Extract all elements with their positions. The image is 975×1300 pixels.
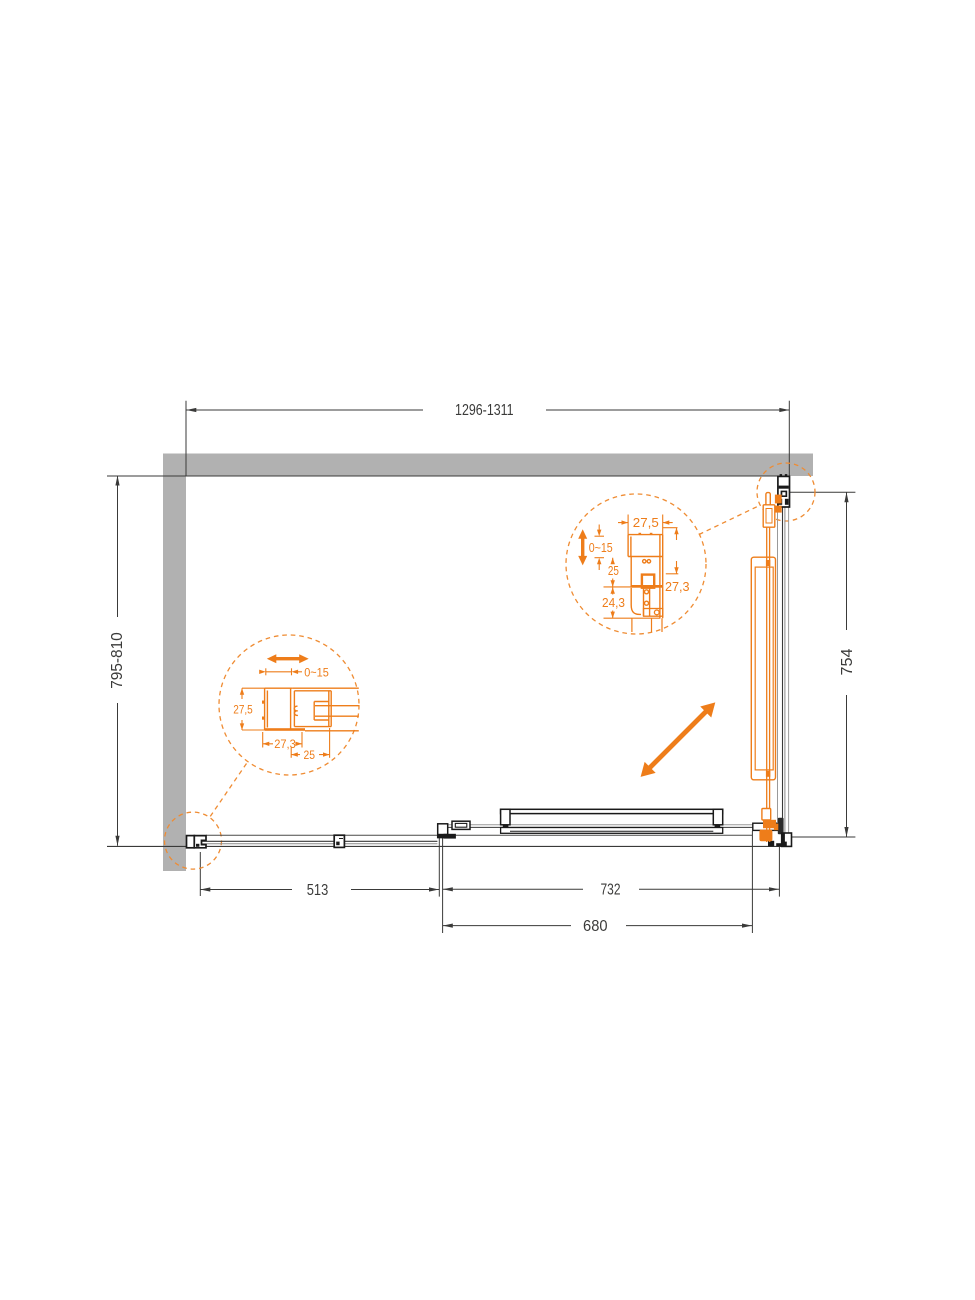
svg-text:795-810: 795-810 [109,632,126,689]
svg-text:27,3: 27,3 [665,580,690,594]
svg-text:27,5: 27,5 [233,705,253,717]
svg-text:27,3: 27,3 [274,739,296,751]
svg-text:754: 754 [839,648,856,675]
svg-text:0~15: 0~15 [304,668,329,680]
svg-text:25: 25 [304,750,316,762]
svg-text:732: 732 [601,882,621,899]
svg-text:27,5: 27,5 [633,516,659,530]
svg-text:1296-1311: 1296-1311 [455,402,514,419]
svg-text:513: 513 [307,882,329,899]
svg-text:680: 680 [583,918,608,935]
svg-text:24,3: 24,3 [602,596,625,610]
svg-text:0~15: 0~15 [589,541,613,555]
svg-text:25: 25 [608,564,619,578]
